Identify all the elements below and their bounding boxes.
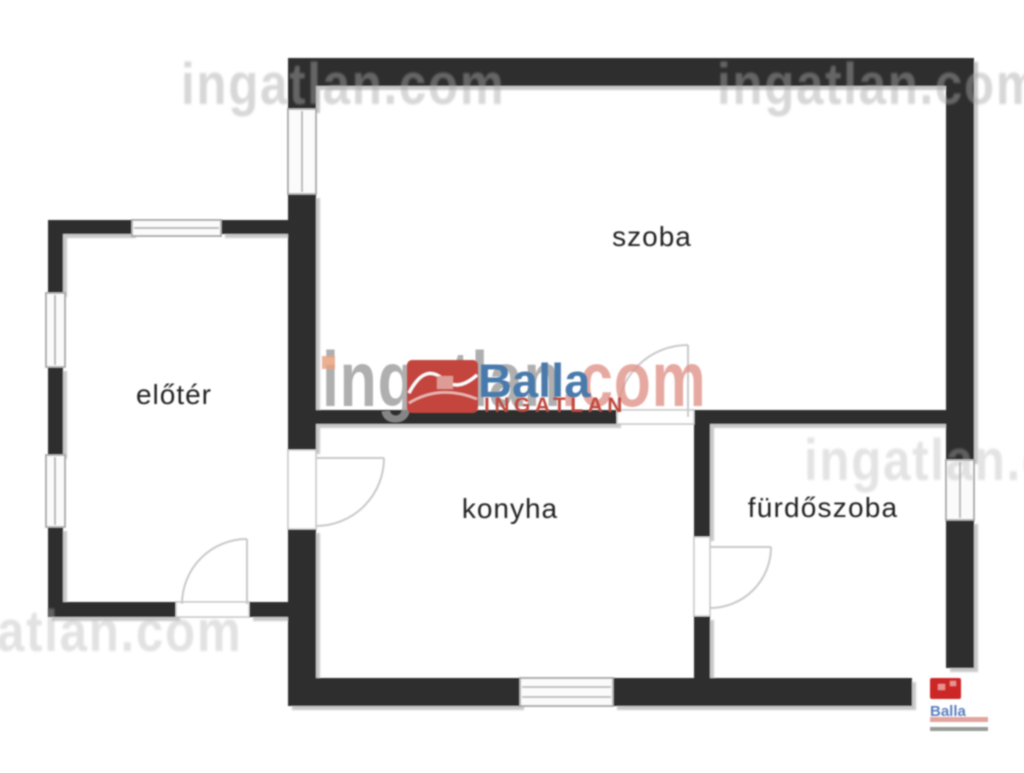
svg-text:ingatlan.com: ingatlan.com bbox=[181, 52, 505, 117]
svg-text:szoba: szoba bbox=[612, 221, 692, 252]
svg-text:konyha: konyha bbox=[462, 493, 558, 524]
svg-text:ingatlan.com: ingatlan.com bbox=[804, 428, 1024, 493]
svg-text:ingatlan.com: ingatlan.com bbox=[717, 52, 1024, 117]
svg-text:előtér: előtér bbox=[136, 379, 212, 410]
svg-text:INGATLAN: INGATLAN bbox=[484, 394, 627, 417]
svg-text:ingatlan.com: ingatlan.com bbox=[0, 599, 242, 664]
svg-text:fürdőszoba: fürdőszoba bbox=[748, 492, 899, 523]
